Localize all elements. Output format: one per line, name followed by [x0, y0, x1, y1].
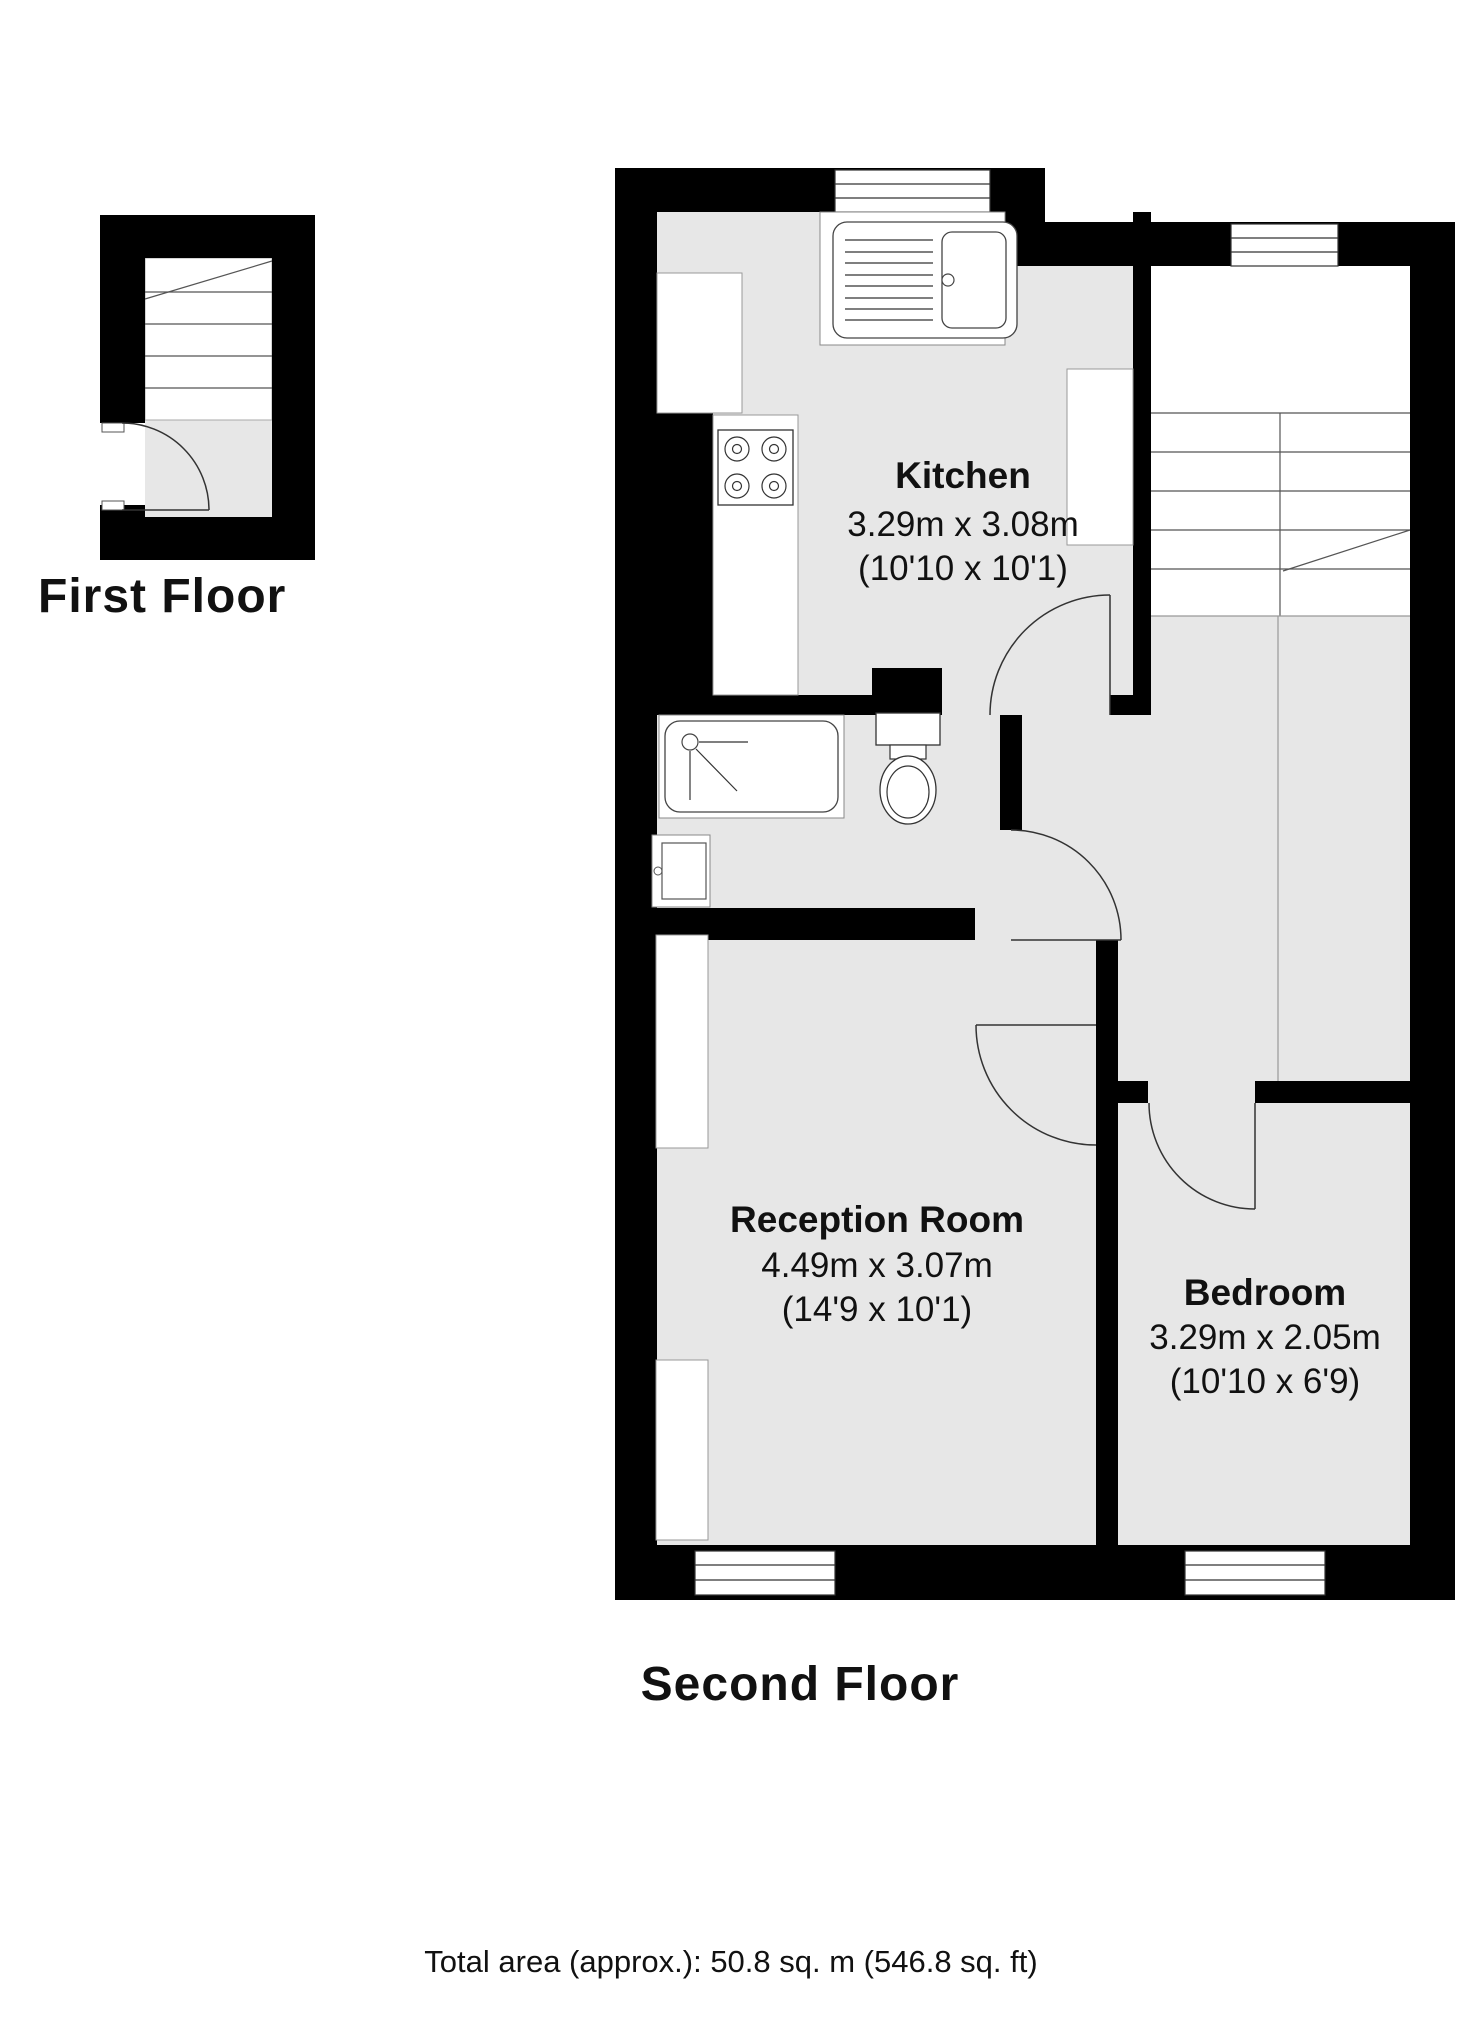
wash-basin-icon	[652, 835, 710, 907]
reception-dim-metric: 4.49m x 3.07m	[761, 1246, 993, 1285]
first-floor-plan: First Floor	[38, 215, 315, 623]
second-floor-plan: Kitchen 3.29m x 3.08m (10'10 x 10'1) Rec…	[615, 168, 1455, 1711]
reception-side-window-lower	[656, 1360, 708, 1540]
kitchen-dim-imperial: (10'10 x 10'1)	[858, 549, 1068, 588]
kitchen-name: Kitchen	[895, 455, 1031, 496]
bedroom-bottom-window	[1185, 1551, 1325, 1595]
reception-side-window-upper	[656, 935, 708, 1148]
second-floor-label: Second Floor	[641, 1658, 960, 1711]
stairs-window	[1231, 224, 1338, 266]
bedroom-dim-imperial: (10'10 x 6'9)	[1170, 1362, 1360, 1401]
bedroom-dim-metric: 3.29m x 2.05m	[1149, 1318, 1381, 1357]
bedroom-name: Bedroom	[1184, 1272, 1346, 1313]
toilet-icon	[876, 713, 940, 824]
sink-icon	[820, 212, 1017, 345]
bathtub-icon	[659, 715, 844, 818]
stove-icon	[713, 415, 798, 695]
total-area-text: Total area (approx.): 50.8 sq. m (546.8 …	[424, 1944, 1037, 1979]
reception-name: Reception Room	[730, 1199, 1024, 1240]
kitchen-window	[835, 170, 990, 212]
reception-bottom-window	[695, 1551, 835, 1595]
kitchen-dim-metric: 3.29m x 3.08m	[847, 505, 1079, 544]
staircase-icon	[145, 258, 272, 420]
floorplan-canvas: First Floor	[0, 0, 1463, 2025]
kitchen-counter-recess	[657, 273, 742, 413]
bedroom-label-group: Bedroom 3.29m x 2.05m (10'10 x 6'9)	[1149, 1272, 1381, 1401]
first-floor-label: First Floor	[38, 570, 286, 623]
staircase-icon	[1151, 266, 1410, 616]
reception-dim-imperial: (14'9 x 10'1)	[782, 1290, 972, 1329]
